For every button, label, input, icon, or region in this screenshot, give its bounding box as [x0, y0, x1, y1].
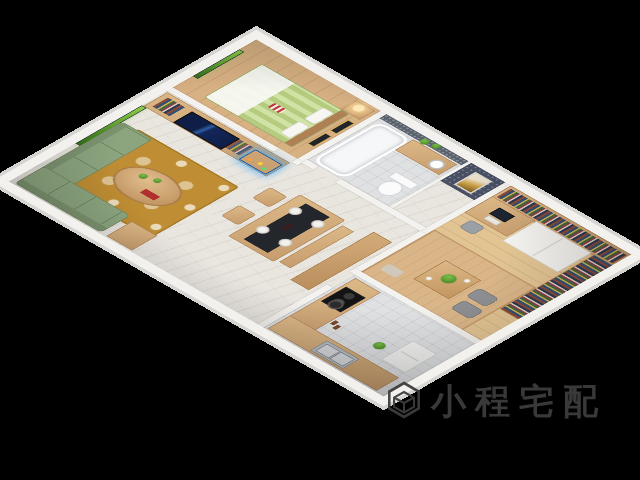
- round-sink: [425, 158, 449, 172]
- render-canvas: 小程宅配: [0, 0, 640, 480]
- table-plant: [137, 173, 150, 180]
- striped-accent-pillow: [268, 103, 287, 114]
- watermark-text: 小程宅配: [431, 383, 607, 418]
- bedroom-window: [193, 49, 245, 79]
- teacup: [462, 278, 472, 284]
- potted-plant: [370, 340, 388, 351]
- teacup: [424, 276, 434, 282]
- dining-table: [228, 194, 345, 261]
- red-tray: [140, 189, 161, 201]
- apartment-interior: [9, 40, 631, 397]
- watermark: 小程宅配: [384, 380, 607, 420]
- apartment-floorplan: [0, 30, 640, 406]
- table-plant: [152, 177, 163, 183]
- aquarium-with-led: [239, 149, 283, 174]
- hexagon-cube-logo: [384, 380, 424, 420]
- potted-plant: [437, 272, 460, 285]
- shelf-books: [152, 98, 185, 117]
- white-appliance: [381, 340, 438, 372]
- double-sink: [310, 340, 359, 368]
- pillow: [379, 263, 404, 278]
